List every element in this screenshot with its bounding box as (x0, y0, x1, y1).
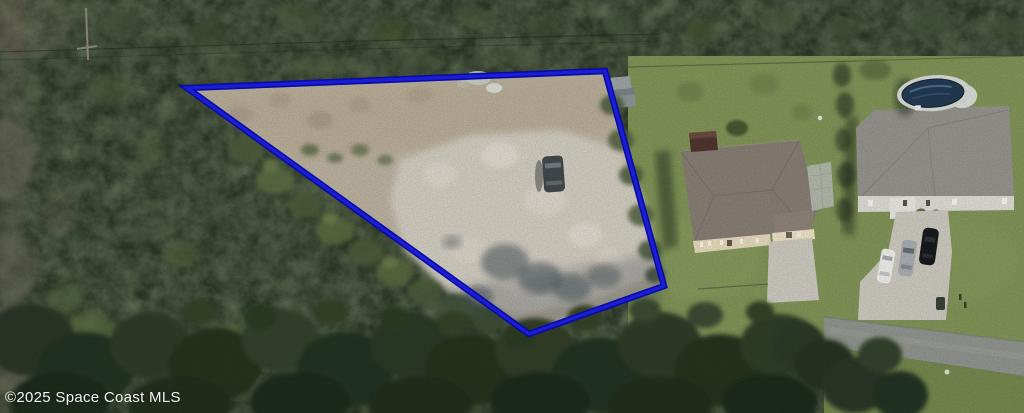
mls-watermark: ©2025 Space Coast MLS (5, 389, 181, 406)
aerial-photo-canvas (0, 0, 1024, 413)
photo-grain-overlay (0, 0, 1024, 413)
aerial-photo: ©2025 Space Coast MLS (0, 0, 1024, 413)
